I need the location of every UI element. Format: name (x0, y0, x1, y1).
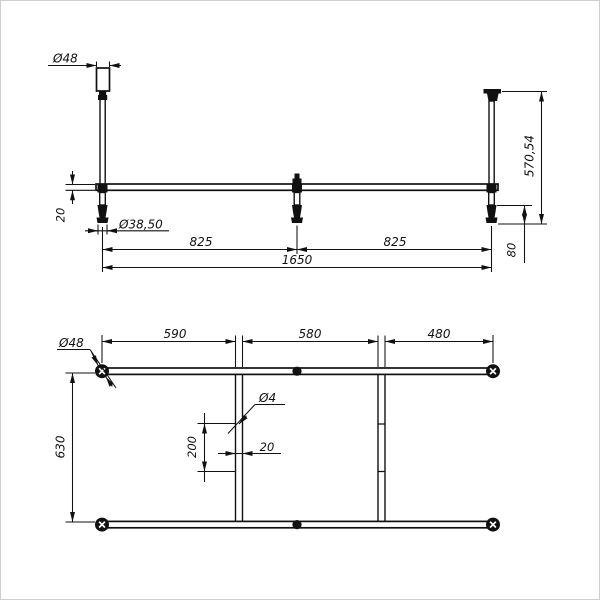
dim-span-left: 825 (103, 235, 298, 250)
front-view: Ø48 20 Ø38,50 825 825 (48, 52, 547, 273)
dim-rail-tube: 20 (54, 171, 96, 222)
dim-label-foot-height: 80 (505, 243, 519, 258)
dim-label-span-left: 825 (190, 235, 213, 249)
dim-label-foot-diameter: Ø38,50 (118, 218, 163, 232)
dim-label-segment-left: 590 (164, 327, 187, 341)
post-end-top-left (95, 364, 109, 378)
dim-hole-spacing: 200 (185, 413, 236, 482)
dim-label-total-height: 570,54 (523, 135, 537, 177)
dim-segment-middle: 580 (243, 327, 379, 342)
leg-middle (291, 184, 303, 224)
front-structure (96, 68, 501, 223)
middle-joint-bottom (292, 520, 301, 529)
crossbar-right (378, 372, 385, 524)
leg-right (486, 184, 498, 224)
post-end-bottom-left (95, 518, 109, 532)
dim-label-hole-spacing: 200 (185, 436, 199, 458)
dim-label-crossbar-width: 20 (260, 440, 275, 454)
ceiling-cup-left (97, 68, 110, 100)
post-end-top-right (486, 364, 500, 378)
ceiling-flange-right (484, 89, 502, 101)
dim-label-cap-diameter: Ø48 (52, 52, 78, 66)
middle-leg-cap (293, 174, 302, 185)
post-end-bottom-right (486, 518, 500, 532)
dim-label-total-length: 1650 (282, 253, 313, 267)
dim-label-frame-width: 630 (54, 435, 68, 458)
plan-structure (95, 364, 500, 531)
dim-foot-height: 80 (497, 206, 532, 264)
dim-post-diameter: Ø48 (57, 336, 116, 388)
dim-segment-left: 590 (102, 327, 236, 342)
dim-cap-diameter: Ø48 (48, 52, 121, 68)
plan-view: 590 580 480 Ø48 Ø4 (54, 327, 501, 532)
dim-label-rail-tube: 20 (54, 208, 68, 223)
dim-label-span-right: 825 (384, 235, 407, 249)
dim-total-length: 1650 (103, 253, 492, 268)
dim-frame-width: 630 (54, 373, 96, 522)
post-left-tube (100, 97, 105, 185)
drawing-canvas: Ø48 20 Ø38,50 825 825 (0, 0, 600, 600)
dim-label-segment-right: 480 (428, 327, 451, 341)
dim-total-height: 570,54 (498, 92, 547, 225)
dim-segment-right: 480 (385, 327, 493, 342)
post-right-tube (489, 101, 494, 185)
middle-joint-top (292, 367, 301, 376)
crossbar-left (236, 372, 243, 524)
dim-label-segment-middle: 580 (299, 327, 322, 341)
leg-left (97, 184, 109, 224)
dim-label-hole-diameter: Ø4 (258, 391, 276, 405)
technical-drawing: Ø48 20 Ø38,50 825 825 (1, 1, 600, 600)
dim-crossbar-width: 20 (218, 440, 281, 454)
dim-label-post-diameter: Ø48 (58, 336, 84, 350)
dim-span-right: 825 (297, 235, 492, 250)
